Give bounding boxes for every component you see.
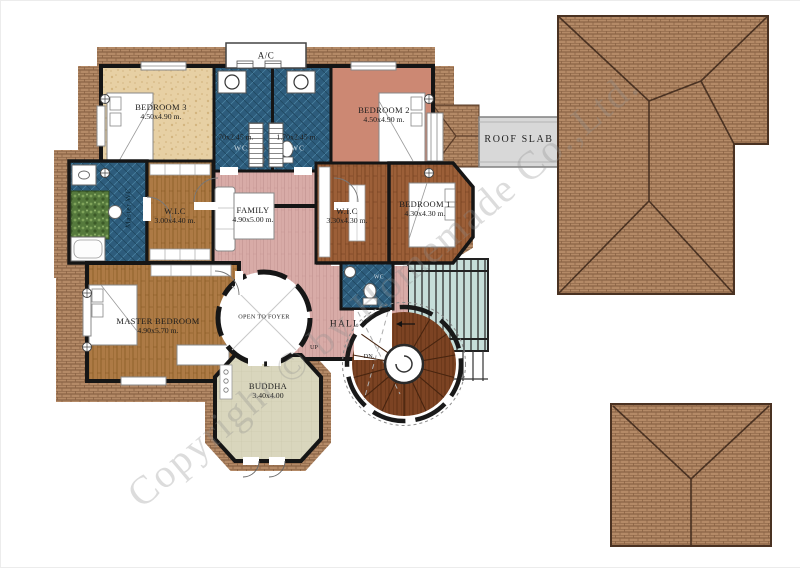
sofa-family [215,187,235,251]
toilet-master-wc [79,171,90,179]
floorplan-page: A/C BEDROOM 3 4.50x4.90 m. BEDROOM 2 4.5… [0,0,800,568]
sofa-master [177,345,229,365]
wic-left-floor [147,161,213,263]
sink-left [225,75,239,89]
sink-master-wc [109,206,122,219]
sink-right [294,75,308,89]
toilet-hall-wc [364,284,376,299]
floorplan-canvas [1,1,800,567]
main-roof-plan [558,16,768,294]
sink-hall-wc [345,267,356,278]
secondary-roof-plan [611,404,771,546]
table-family [234,193,274,239]
planter-garden [71,191,109,239]
roof-slab-connector [433,105,575,167]
bathtub [71,237,105,261]
